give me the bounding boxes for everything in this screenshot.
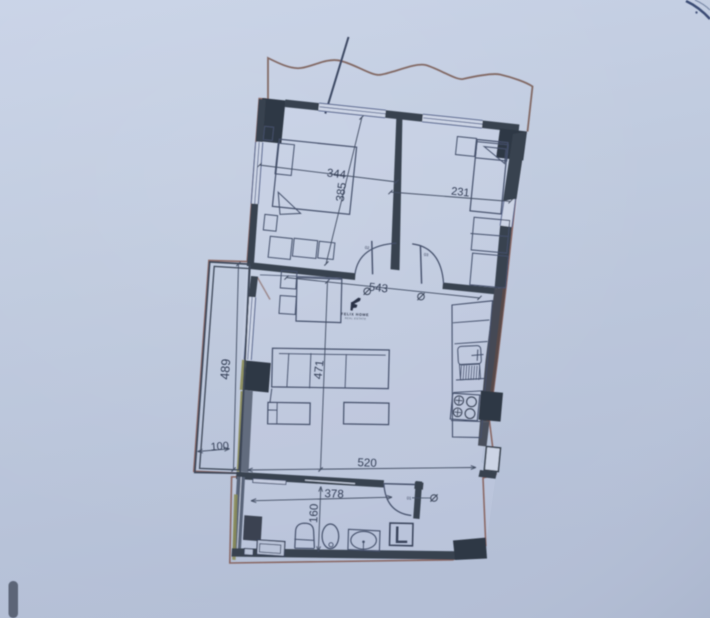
- svg-text:100: 100: [210, 440, 229, 453]
- svg-text:543: 543: [368, 282, 388, 296]
- svg-text:378: 378: [324, 488, 344, 501]
- svg-text:231: 231: [451, 186, 471, 200]
- svg-text:REAL ESTATE: REAL ESTATE: [345, 316, 367, 321]
- svg-text:489: 489: [218, 358, 233, 380]
- svg-text:385: 385: [335, 182, 349, 203]
- svg-text:471: 471: [313, 360, 327, 380]
- svg-text:160: 160: [308, 504, 321, 524]
- svg-text:344: 344: [326, 167, 347, 181]
- svg-text:520: 520: [357, 457, 377, 470]
